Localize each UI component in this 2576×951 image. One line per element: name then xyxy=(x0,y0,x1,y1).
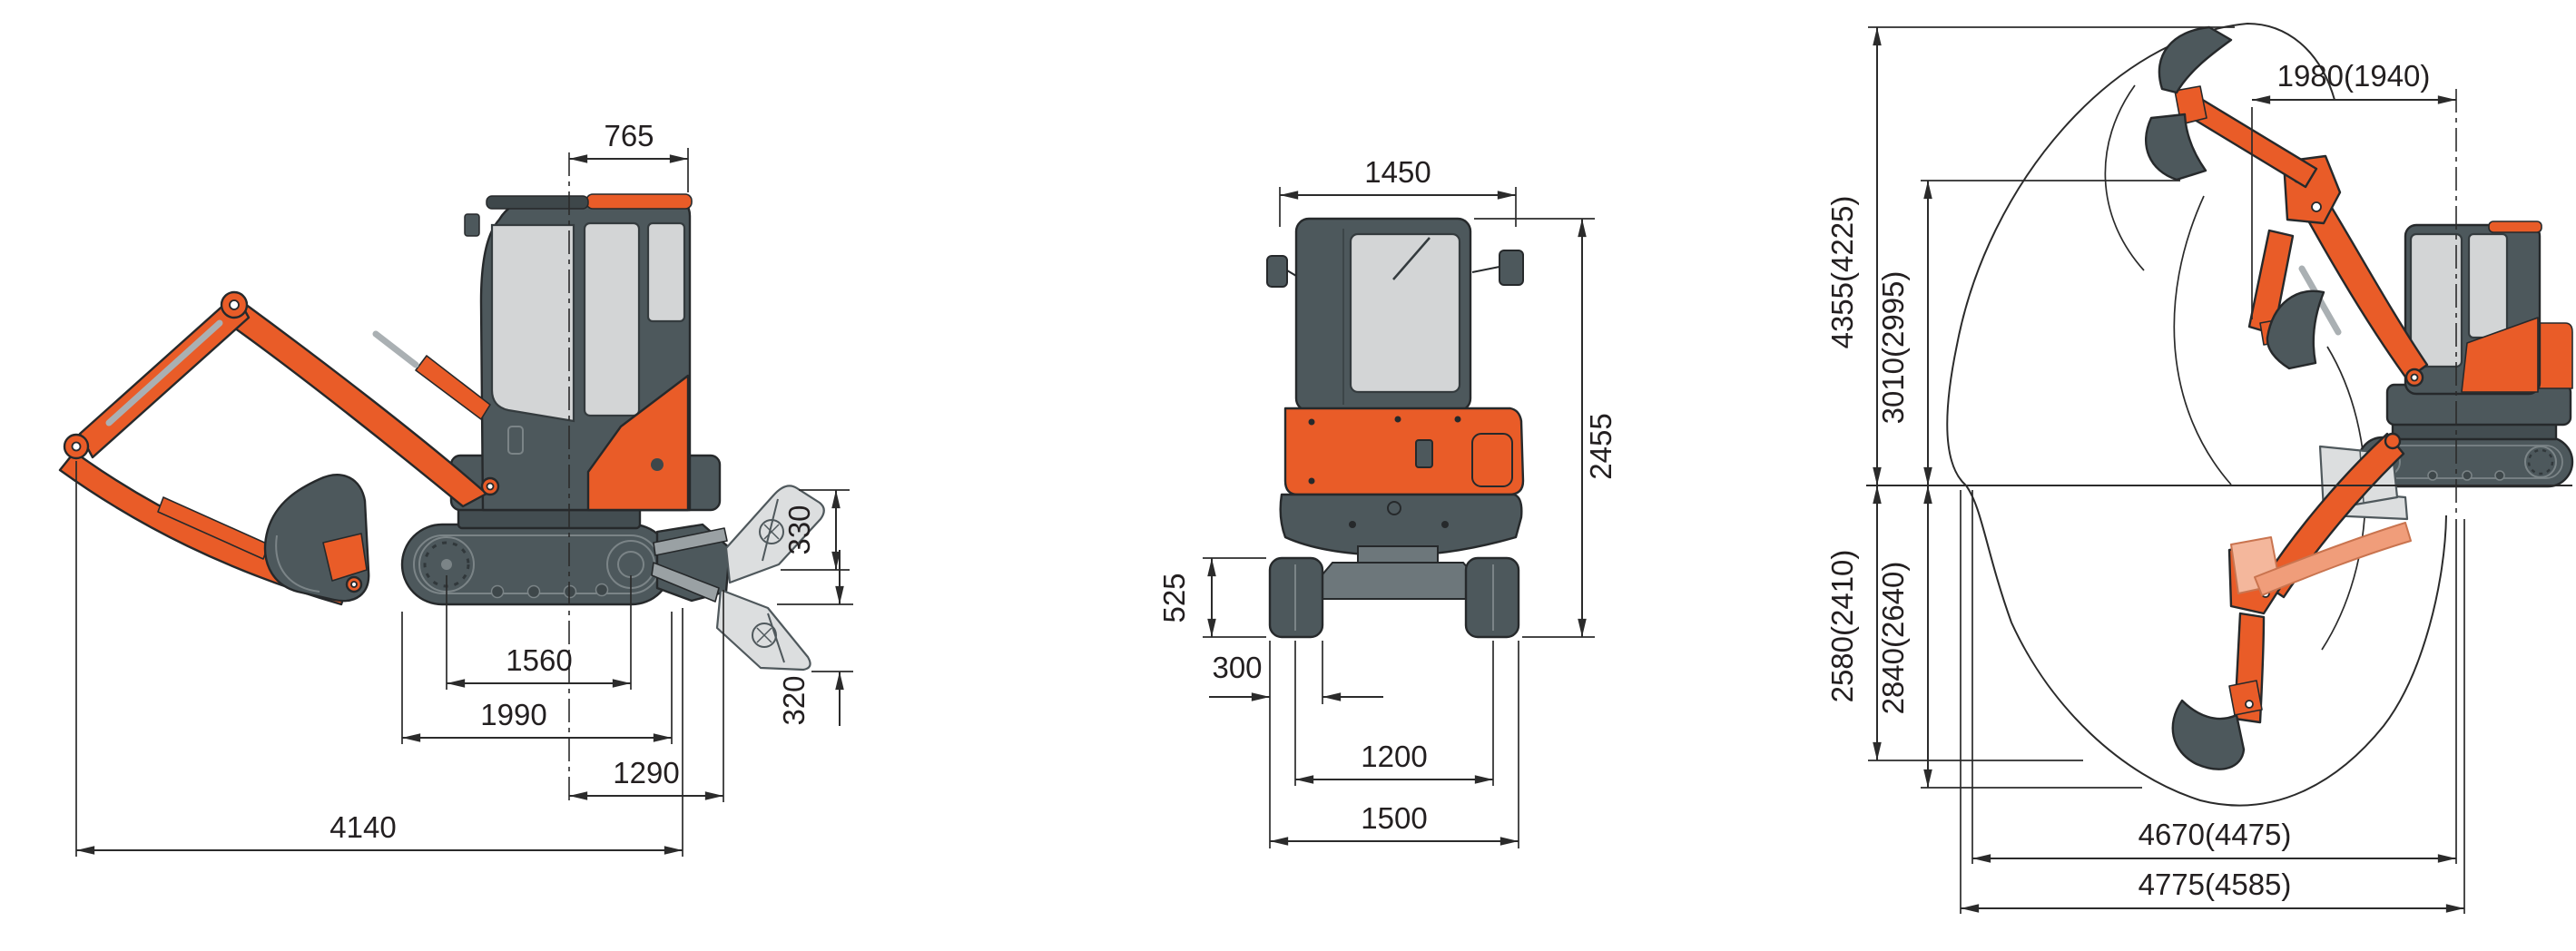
axle-beam xyxy=(1313,563,1483,599)
boom xyxy=(225,301,487,506)
roof-rail xyxy=(487,196,588,209)
bucket-trajectory-arc xyxy=(2174,196,2231,485)
side-view-machine xyxy=(60,194,824,670)
mirror-right xyxy=(1499,250,1523,285)
cab-door-window xyxy=(2469,234,2507,338)
dim-label-2840: 2840(2640) xyxy=(1876,562,1910,715)
boom-cylinder-rod xyxy=(376,334,416,365)
dim-label-4355: 4355(4225) xyxy=(1825,196,1859,349)
dim-label-1980: 1980(1940) xyxy=(2277,59,2431,93)
diagram-canvas: 765 330 320 1560 1990 1290 4140 xyxy=(0,0,2576,951)
cab-rear-window xyxy=(648,223,684,321)
mirror-left xyxy=(1267,256,1287,287)
pivot xyxy=(2385,434,2400,448)
dim-label-4670: 4670(4475) xyxy=(2138,818,2292,851)
dim-label-1560: 1560 xyxy=(506,643,572,677)
bucket-max-depth xyxy=(2173,701,2244,770)
engine-hood xyxy=(1285,408,1523,495)
bucket-link xyxy=(2229,681,2262,715)
working-envelope-curve xyxy=(1947,24,2446,806)
pivot-pin xyxy=(2246,701,2253,708)
dim-label-1990: 1990 xyxy=(480,698,546,731)
roof-orange-strip xyxy=(586,194,692,209)
pivot-pin xyxy=(230,300,239,309)
excavator-dimension-diagram: 765 330 320 1560 1990 1290 4140 xyxy=(0,0,2576,951)
dim-label-300: 300 xyxy=(1212,651,1262,684)
dim-label-2580: 2580(2410) xyxy=(1825,550,1859,703)
track-roller xyxy=(596,584,608,596)
hood-latch xyxy=(1416,440,1432,467)
rear-window xyxy=(1351,234,1460,392)
cab-front-window xyxy=(492,225,574,421)
pivot-pin xyxy=(2412,375,2418,381)
track-roller xyxy=(2428,471,2437,480)
pivot-pin xyxy=(487,484,494,490)
bolt xyxy=(1309,478,1315,485)
rear-view-machine xyxy=(1267,219,1523,637)
bolt xyxy=(1309,419,1315,426)
side-view: 765 330 320 1560 1990 1290 4140 xyxy=(60,119,853,857)
dim-label-525: 525 xyxy=(1157,573,1191,623)
bolt xyxy=(1395,417,1401,423)
pivot-pin xyxy=(2312,202,2321,211)
bucket-trajectory-arc xyxy=(2105,85,2144,270)
mirror-arm xyxy=(1472,267,1499,272)
dim-label-4775: 4775(4585) xyxy=(2138,868,2292,901)
boom-cylinder-barrel xyxy=(416,356,490,419)
roof-orange-strip xyxy=(2489,221,2542,232)
dim-label-1450: 1450 xyxy=(1364,155,1431,189)
dim-label-1200: 1200 xyxy=(1361,740,1427,773)
track-roller xyxy=(492,586,504,598)
dim-label-4140: 4140 xyxy=(329,810,396,844)
bolt xyxy=(1441,521,1449,528)
blade-lowered xyxy=(717,590,811,670)
fuel-cap xyxy=(651,458,664,471)
rear-view: 1450 2455 525 300 1200 1500 xyxy=(1157,155,1617,848)
track-roller xyxy=(2463,471,2472,480)
dim-label-1500: 1500 xyxy=(1361,801,1427,835)
arm-cylinder-rod xyxy=(109,323,220,423)
bolt xyxy=(1455,417,1461,423)
track-roller xyxy=(2495,471,2504,480)
pivot-pin xyxy=(351,582,357,587)
dim-label-1290: 1290 xyxy=(613,756,679,789)
dim-label-320: 320 xyxy=(777,675,811,725)
bucket-max-height xyxy=(2159,27,2231,93)
working-range-view: 4355(4225) 3010(2995) 2580(2410) 2840(26… xyxy=(1825,24,2572,914)
cab-front-window xyxy=(2411,234,2462,367)
dim-label-765: 765 xyxy=(604,119,654,152)
dim-label-2455: 2455 xyxy=(1584,413,1617,479)
range-machine xyxy=(2146,27,2572,770)
mirror xyxy=(465,214,479,236)
bolt xyxy=(1349,521,1356,528)
track-roller xyxy=(528,586,540,598)
bucket-dumped xyxy=(2146,114,2206,180)
mirror-arm xyxy=(1287,270,1296,276)
cab-door-window xyxy=(585,223,639,416)
track-roller xyxy=(565,586,576,598)
dim-label-3010: 3010(2995) xyxy=(1876,271,1910,425)
sprocket-hub xyxy=(441,559,452,570)
pivot-pin xyxy=(73,443,81,451)
dim-label-330: 330 xyxy=(782,505,816,554)
